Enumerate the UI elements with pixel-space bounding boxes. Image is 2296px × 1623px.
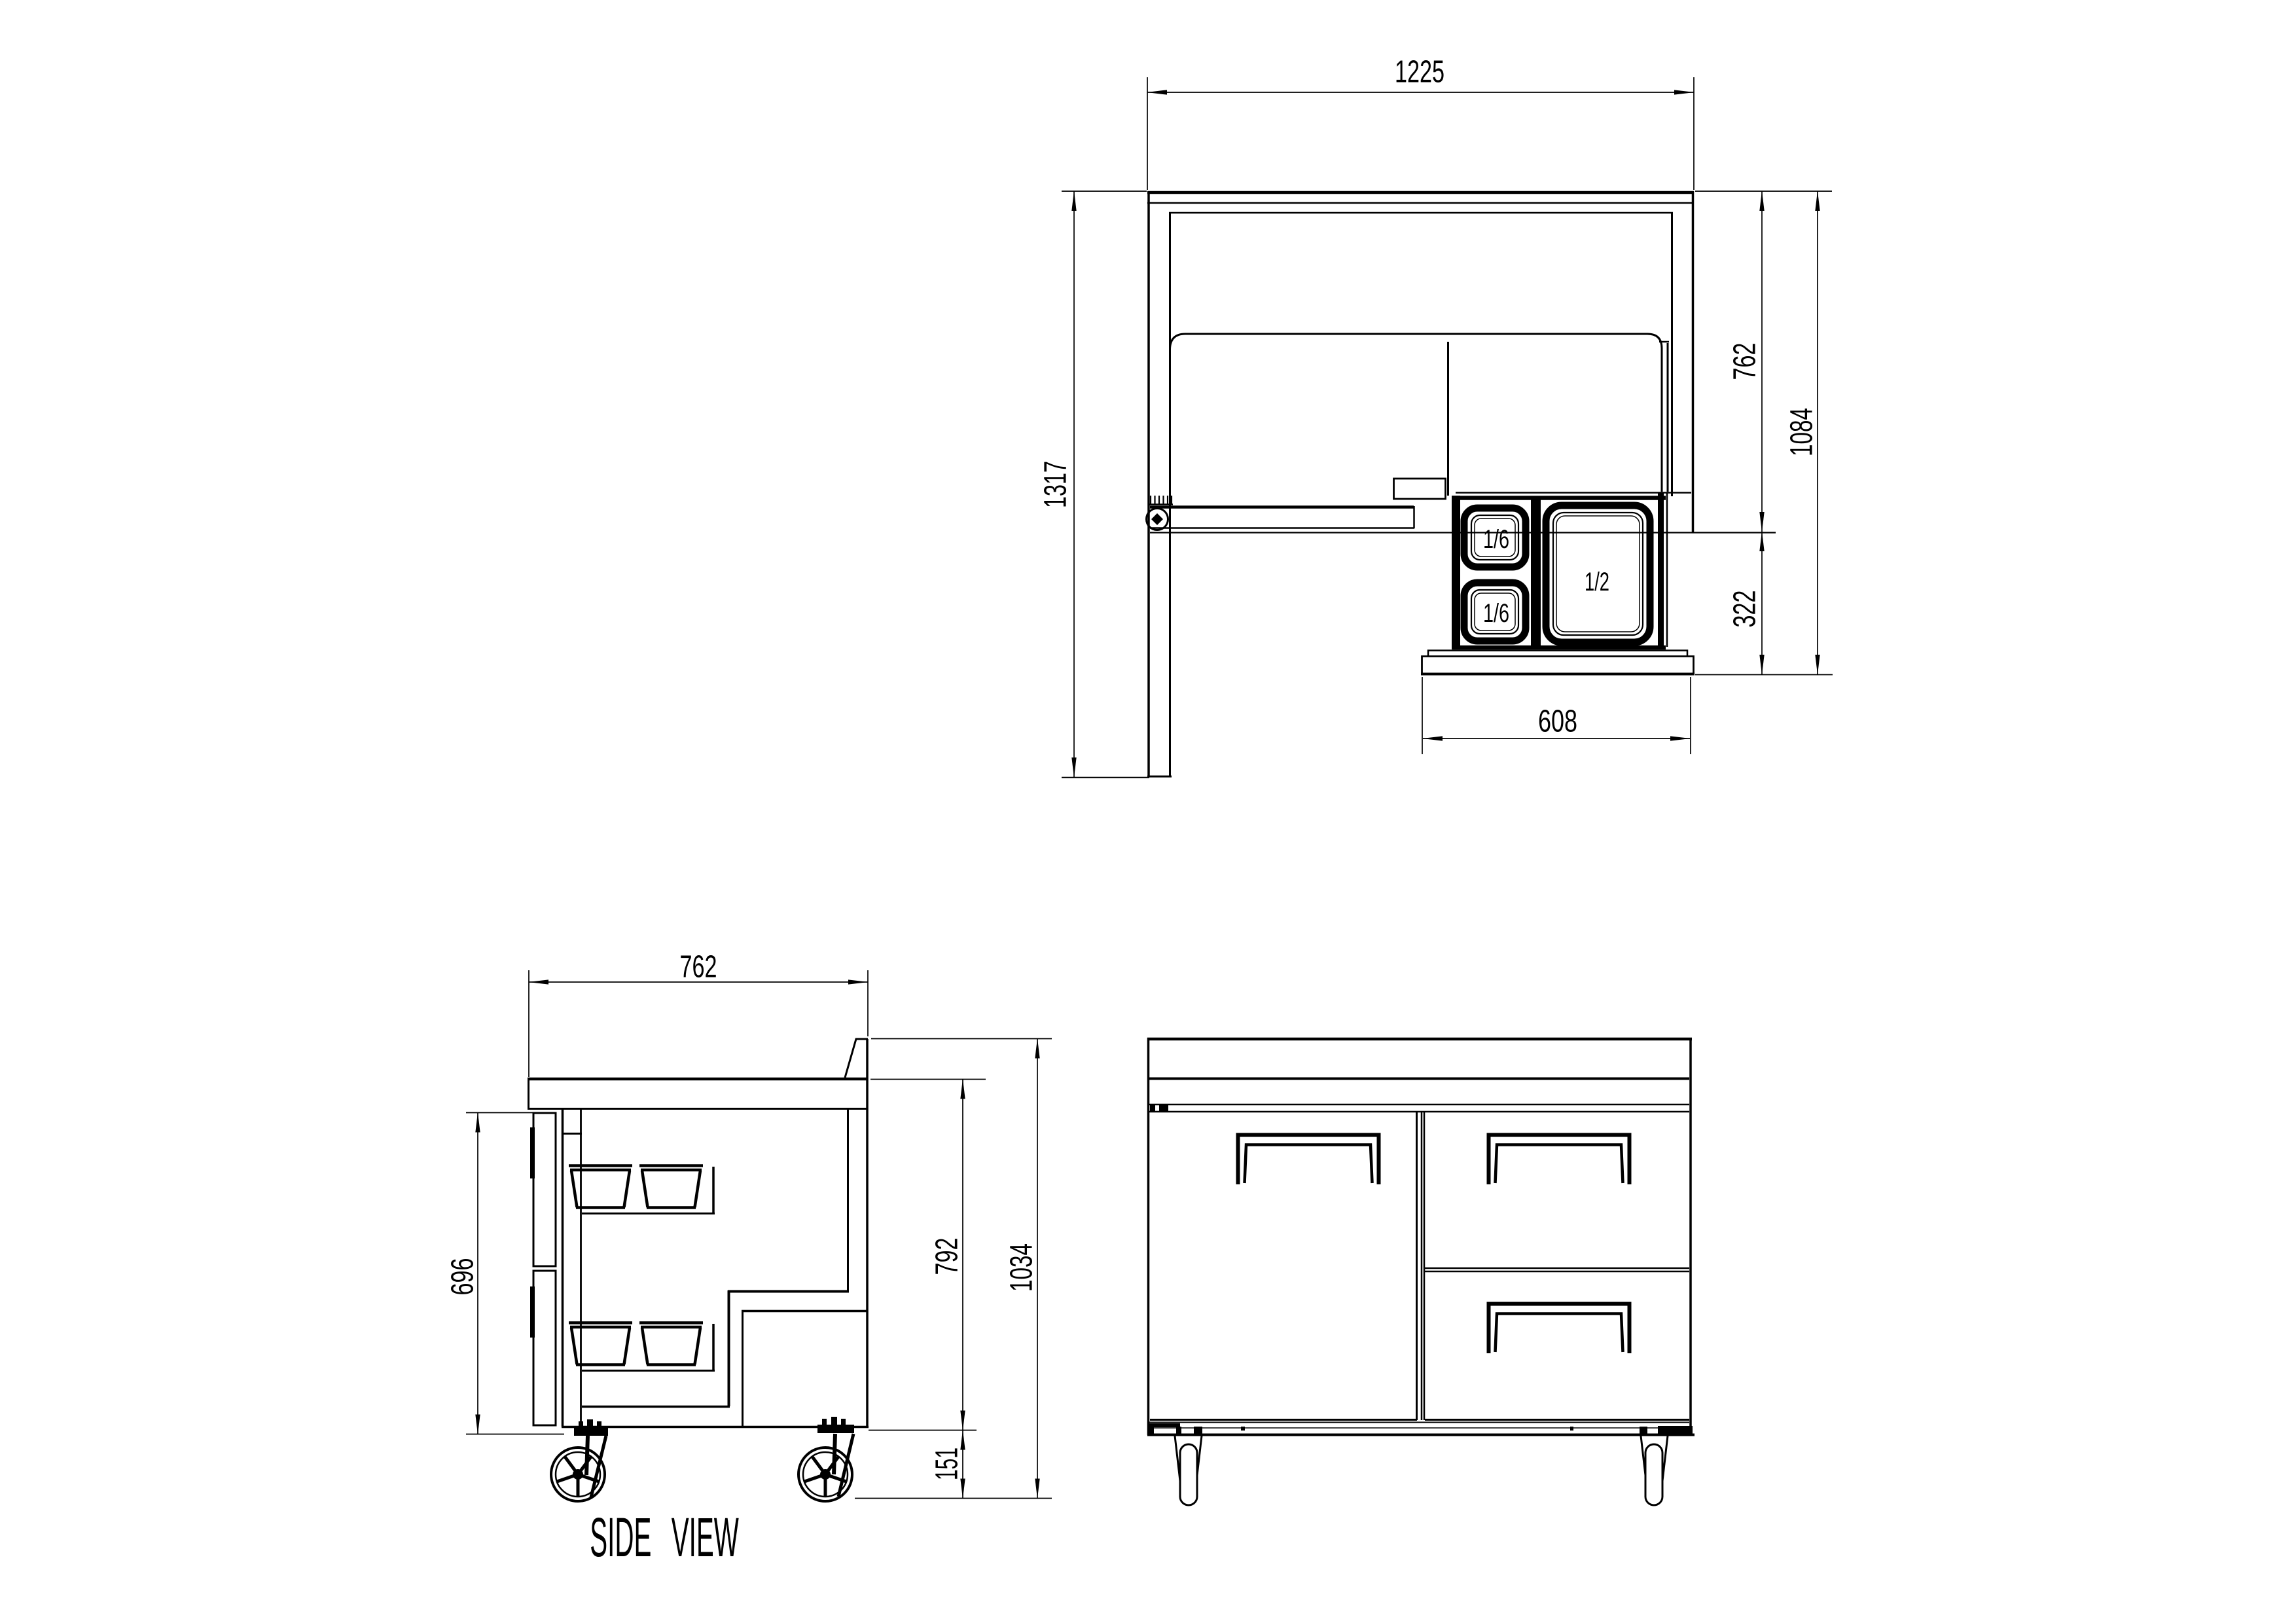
svg-text:322: 322 <box>1728 591 1763 628</box>
svg-text:762: 762 <box>1728 343 1763 380</box>
svg-text:1084: 1084 <box>1785 408 1820 456</box>
svg-text:1/2: 1/2 <box>1585 568 1609 596</box>
svg-text:696: 696 <box>446 1258 480 1296</box>
svg-text:1317: 1317 <box>1039 461 1073 508</box>
svg-text:792: 792 <box>930 1238 965 1275</box>
svg-text:762: 762 <box>679 949 717 984</box>
svg-text:608: 608 <box>1538 704 1577 739</box>
svg-text:1225: 1225 <box>1395 54 1444 89</box>
svg-text:1034: 1034 <box>1005 1243 1039 1292</box>
svg-text:SIDE VIEW: SIDE VIEW <box>590 1506 739 1568</box>
svg-text:1/6: 1/6 <box>1483 525 1509 554</box>
svg-text:1/6: 1/6 <box>1483 599 1509 628</box>
svg-text:151: 151 <box>930 1448 965 1480</box>
